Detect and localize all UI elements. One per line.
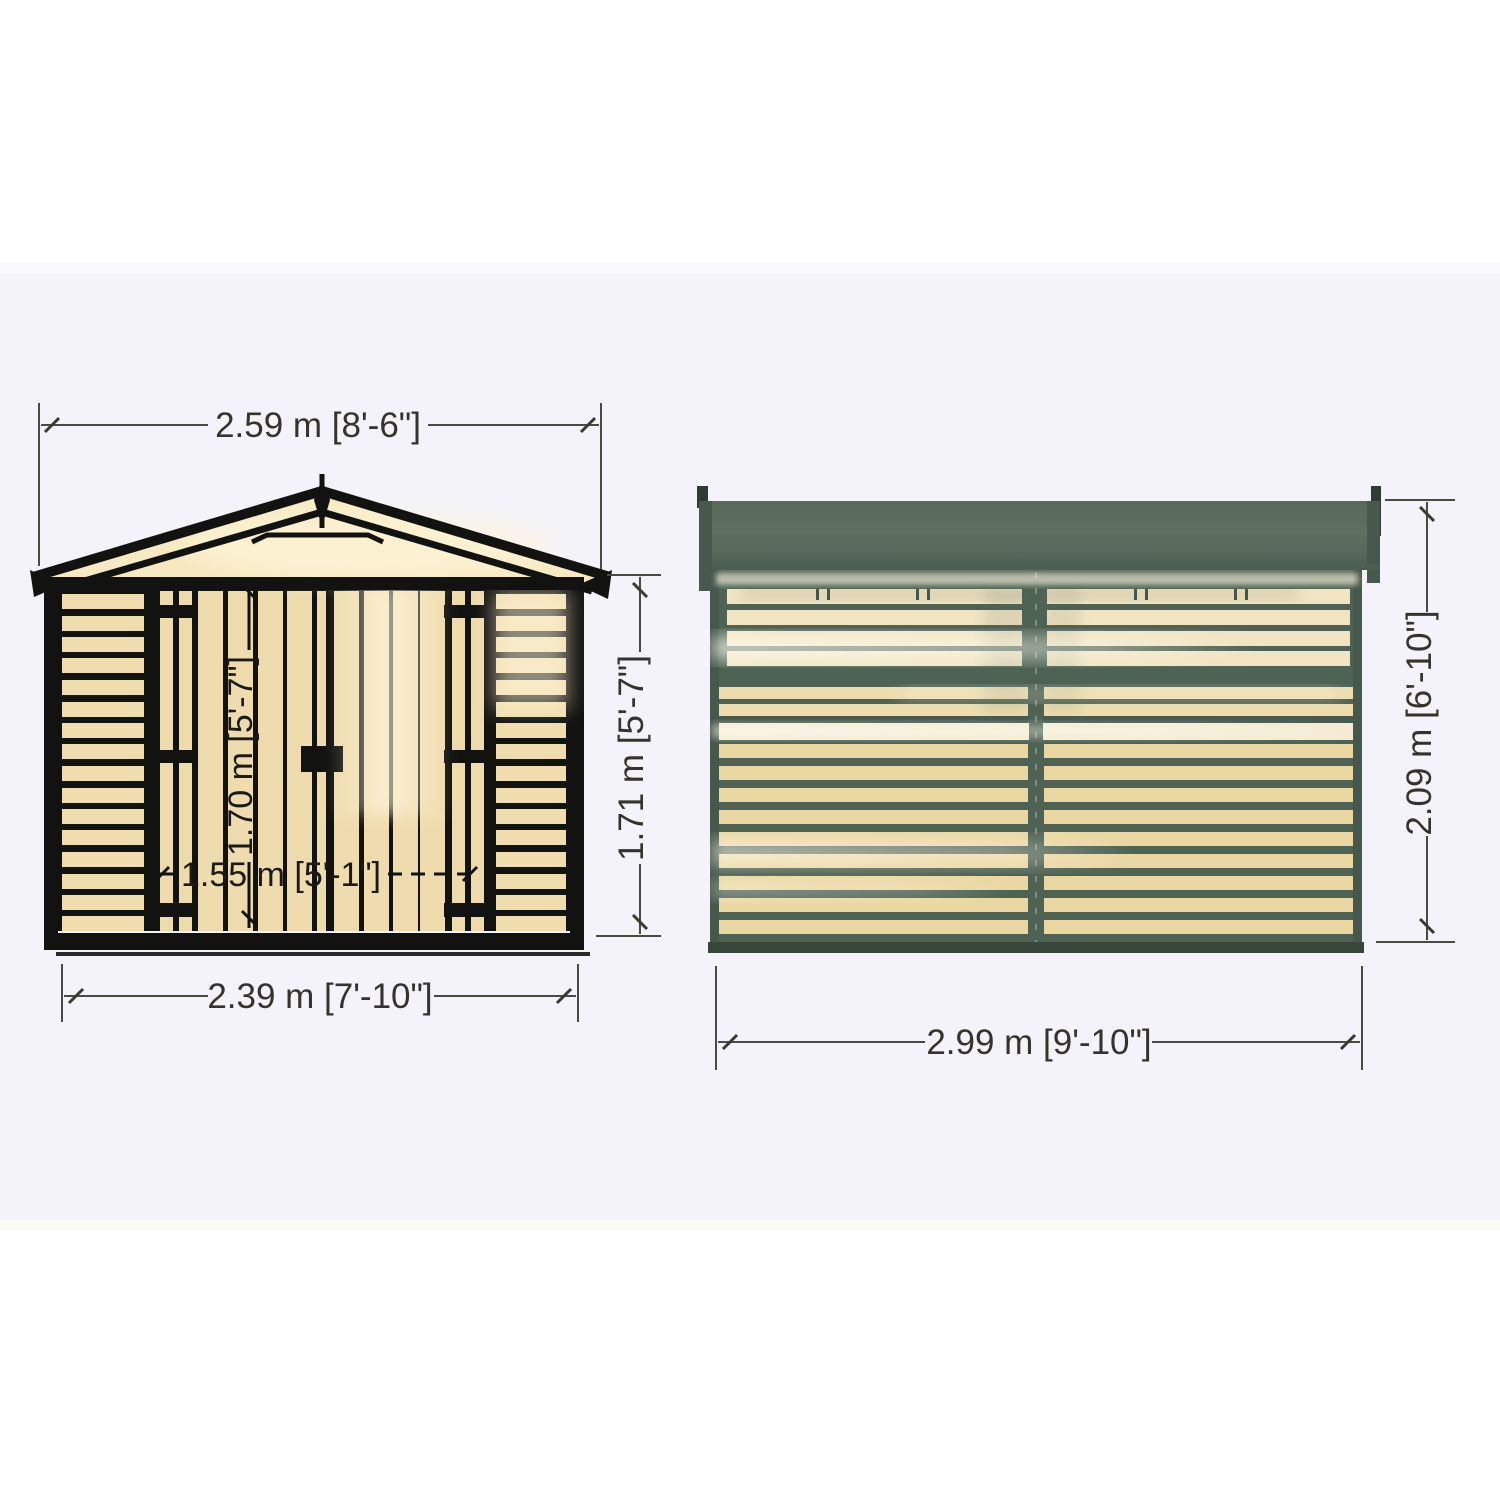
svg-text:2.09 m [6'-10"]: 2.09 m [6'-10"] bbox=[1400, 610, 1439, 835]
svg-text:2.99 m [9'-10"]: 2.99 m [9'-10"] bbox=[926, 1023, 1151, 1062]
svg-text:2.59 m [8'-6"]: 2.59 m [8'-6"] bbox=[215, 406, 421, 445]
svg-text:1.70 m [5'-7"]: 1.70 m [5'-7"] bbox=[222, 656, 260, 856]
svg-text:1.55 m [5'-1"]: 1.55 m [5'-1"] bbox=[181, 856, 381, 894]
svg-text:1.71 m [5'-7"]: 1.71 m [5'-7"] bbox=[612, 655, 651, 861]
svg-text:2.39 m [7'-10"]: 2.39 m [7'-10"] bbox=[207, 977, 432, 1016]
